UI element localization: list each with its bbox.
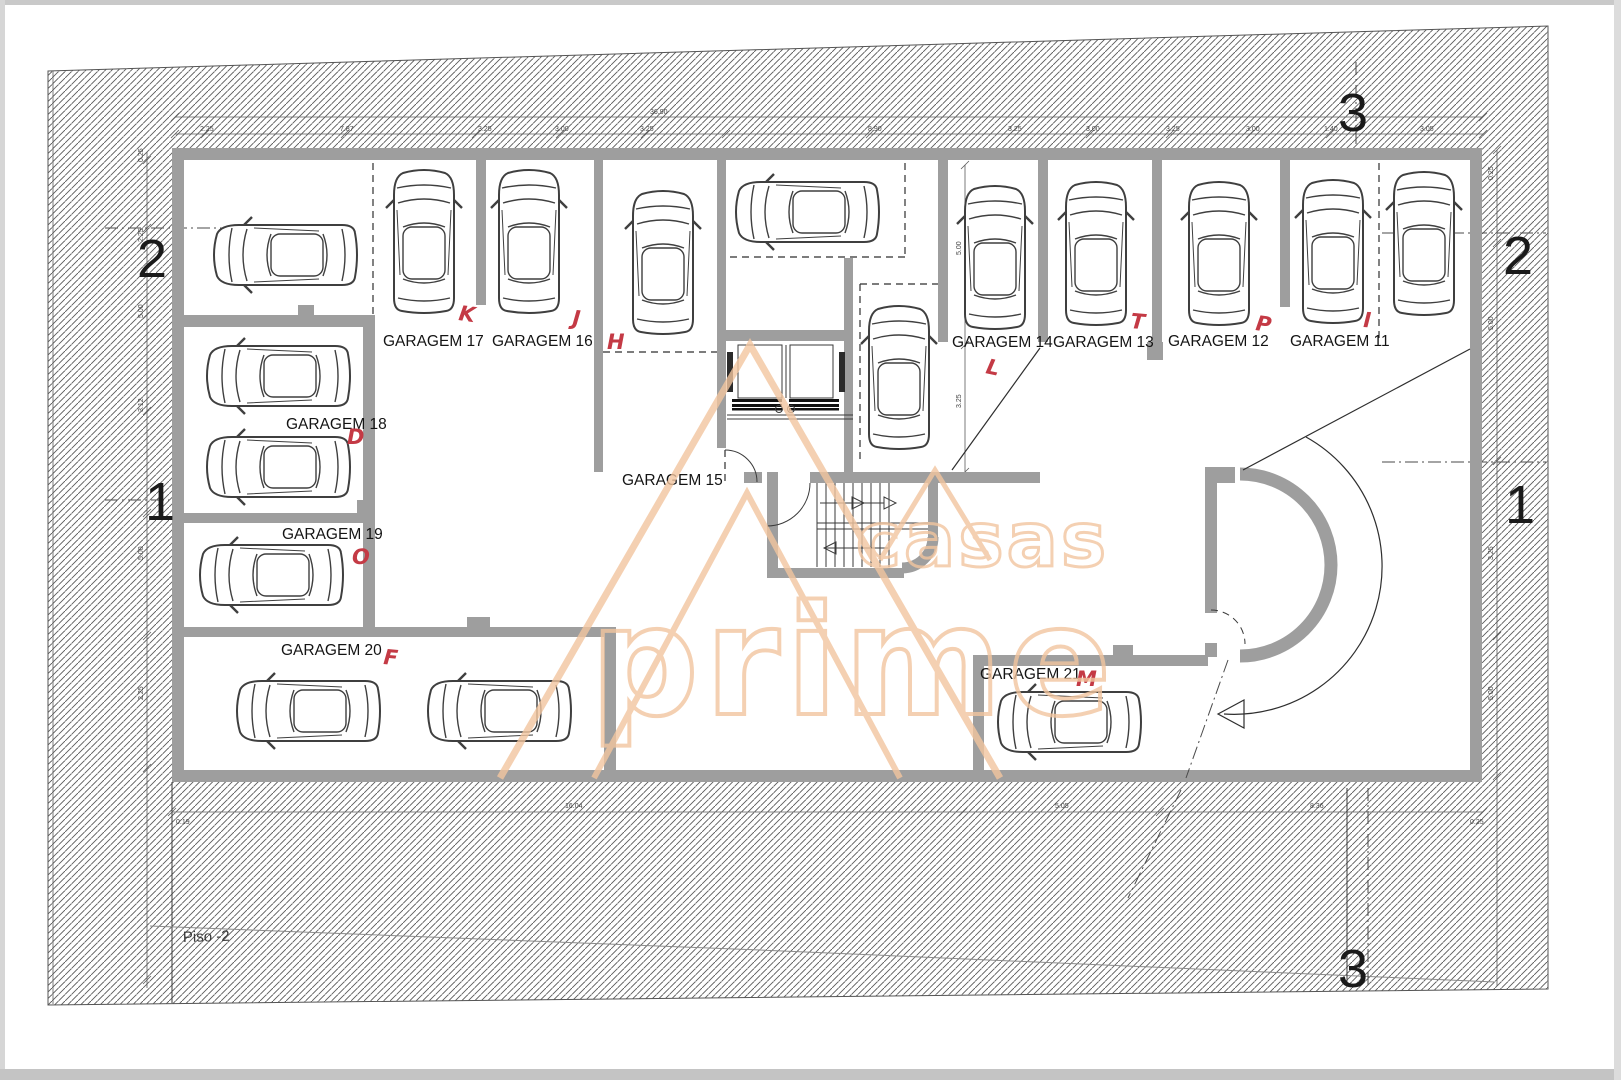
garage-label: GARAGEM 19 [282,526,383,543]
garage-label: GARAGEM 16 [492,333,593,350]
dim-label: 3.25 [1166,126,1180,133]
dim-label: 3.25 [956,394,963,408]
dim-label: 1.40 [1324,126,1338,133]
dim-label: 8.90 [868,126,882,133]
watermark-word-casas: casas [856,495,1109,584]
dim-label: 2.25 [138,228,145,242]
dim-label: 3.25 [478,126,492,133]
dim-label: 8.36 [1310,803,1324,810]
dim-label: 2.25 [138,686,145,700]
dim-label: 3.25 [1008,126,1022,133]
dim-label: 3.25 [1488,546,1495,560]
dim-label: 36.90 [650,109,668,116]
dim-label: 3.00 [1246,126,1260,133]
car-icon [207,429,350,505]
section-marker: 2 [1503,226,1533,286]
car-icon [736,174,879,250]
section-marker: 1 [1505,475,1535,535]
dim-label: 3.00 [1086,126,1100,133]
garage-label: GARAGEM 20 [281,642,382,659]
garage-handwritten-letter: D [347,425,364,449]
garage-label: GARAGEM 11 [1290,333,1390,350]
garage-handwritten-letter: I [1363,308,1372,332]
floor-plan-page: GARAGEM 17GARAGEM 16GARAGEM 15GARAGEM 14… [0,0,1621,1080]
garage-label: GARAGEM 17 [383,333,484,350]
dim-label: 5.00 [138,304,145,318]
car-icon [237,673,380,749]
dim-label: 3.05 [1420,126,1434,133]
dim-label: 2.25 [200,126,214,133]
garage-handwritten-letter: F [383,645,400,670]
dim-label: 5.00 [1488,686,1495,700]
car-icon [200,537,343,613]
car-icon [1058,182,1134,325]
garage-handwritten-letter: H [607,330,625,354]
car-icon [214,217,357,293]
car-icon [491,170,567,313]
car-icon [207,338,350,414]
dim-label: 5.00 [138,546,145,560]
car-icon [1386,172,1462,315]
dim-label: 3.25 [640,126,654,133]
section-marker: 1 [145,472,175,532]
dim-label: 0.19 [176,819,190,826]
car-icon [1295,180,1371,323]
section-marker: 3 [1338,83,1368,143]
car-icon [957,186,1033,329]
car-icon [386,170,462,313]
dim-label: 0.25 [1488,166,1495,180]
garage-handwritten-letter: O [352,545,370,569]
garage-label: GARAGEM 12 [1168,333,1269,350]
garage-label: GARAGEM 14 [952,334,1053,351]
car-icon [428,673,571,749]
section-marker: 3 [1338,939,1368,999]
car-icon [861,306,937,449]
dim-label: 7.87 [340,126,354,133]
watermark-word-prime: prime [590,573,1117,750]
garage-label: GARAGEM 13 [1053,334,1154,351]
dim-label: 16.04 [565,803,583,810]
dim-label: 0.25 [1470,819,1484,826]
floor-level-label: Piso -2 [183,928,230,946]
dim-label: 5.05 [1055,803,1069,810]
floor-plan-drawing: GARAGEM 17GARAGEM 16GARAGEM 15GARAGEM 14… [0,0,1621,1080]
dim-label: 0.25 [138,148,145,162]
car-icon [1181,182,1257,325]
garage-label: GARAGEM 18 [286,416,387,433]
dim-label: 5.00 [956,241,963,255]
dim-label: 3.12 [138,398,145,412]
dim-label: 3.00 [555,126,569,133]
car-icon [625,191,701,334]
elevator-rail-icon [839,352,845,392]
dim-label: 5.00 [1488,316,1495,330]
